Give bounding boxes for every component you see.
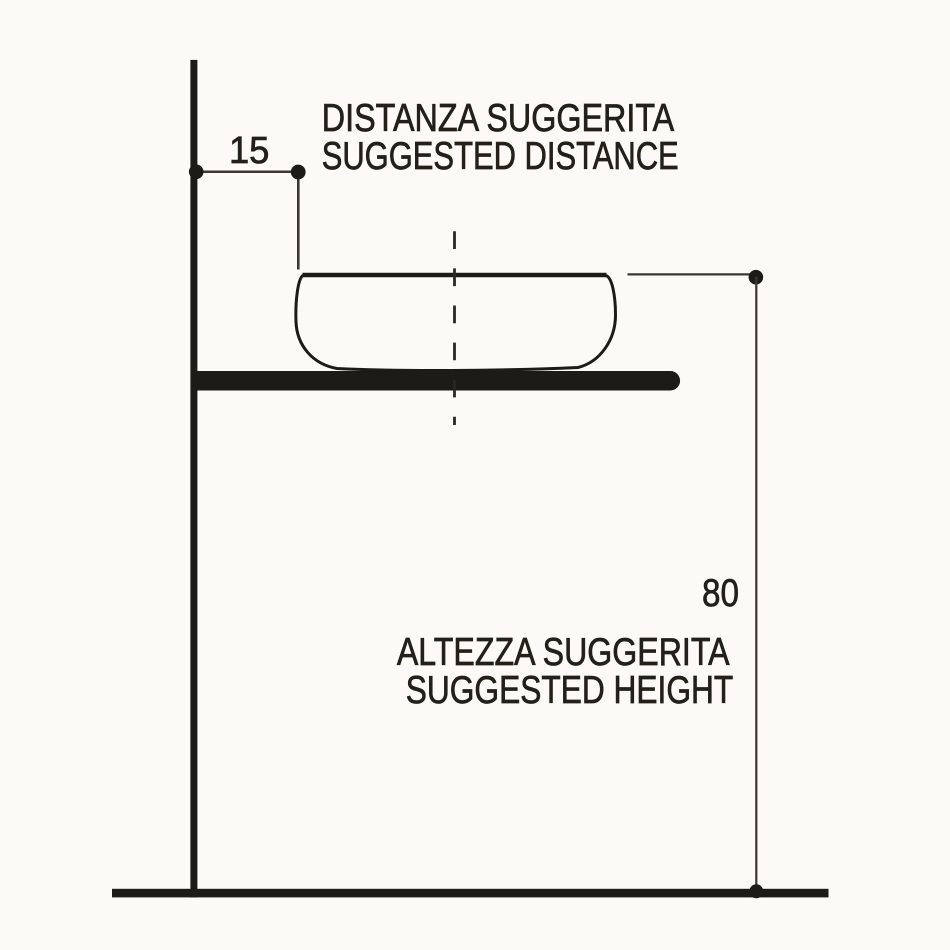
svg-text:SUGGESTED HEIGHT: SUGGESTED HEIGHT — [406, 669, 734, 712]
svg-text:80: 80 — [702, 572, 739, 615]
svg-text:ALTEZZA SUGGERITA: ALTEZZA SUGGERITA — [397, 631, 730, 674]
svg-text:SUGGESTED DISTANCE: SUGGESTED DISTANCE — [322, 135, 679, 178]
svg-text:DISTANZA SUGGERITA: DISTANZA SUGGERITA — [322, 97, 675, 140]
svg-text:15: 15 — [229, 130, 270, 172]
